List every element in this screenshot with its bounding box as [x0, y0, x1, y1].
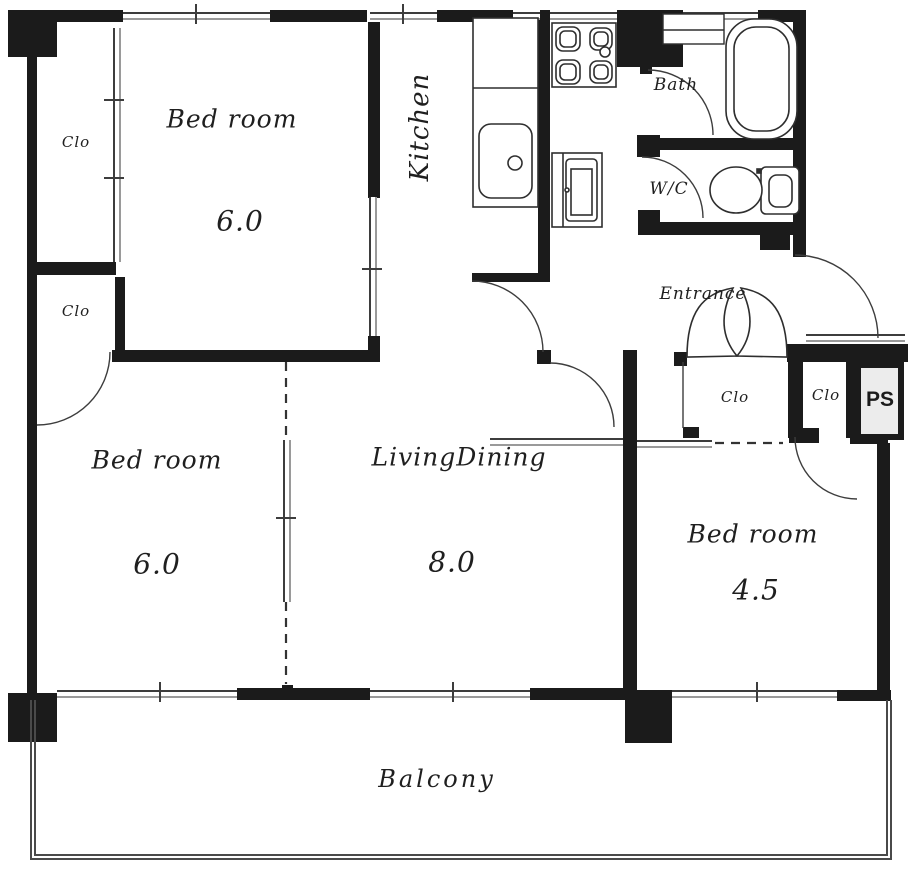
- door-arc-kitchen: [472, 281, 543, 352]
- balcony-label: Balcony: [378, 765, 496, 793]
- bedroom-right-label: Bed room: [688, 520, 819, 549]
- door-arc-entrance: [795, 255, 878, 338]
- bedroom-left-label: Bed room: [92, 446, 223, 475]
- stove-icon: [552, 23, 616, 87]
- pipe-shaft-label: PS: [866, 388, 894, 412]
- living-dining-size: 8.0: [428, 546, 476, 579]
- kitchen-label: Kitchen: [405, 73, 435, 182]
- fixtures-layer: [0, 0, 910, 878]
- entrance-label: Entrance: [660, 284, 747, 304]
- kitchen-sink-icon: [473, 18, 538, 207]
- washing-machine-icon: [552, 153, 602, 227]
- bedroom-top-label: Bed room: [167, 105, 298, 134]
- toilet-icon: [710, 167, 799, 214]
- door-arc-living: [550, 363, 614, 427]
- closet3-label: Clo: [721, 388, 749, 406]
- bath-vanity-icon: [663, 14, 724, 44]
- closet1-label: Clo: [62, 133, 90, 151]
- wc-label: W/C: [649, 179, 688, 199]
- living-dining-label: LivingDining: [371, 443, 546, 472]
- bedroom-left-size: 6.0: [133, 548, 181, 581]
- floor-plan: Bed room 6.0 Clo Clo Kitchen Bath W/C En…: [0, 0, 910, 878]
- door-arc-closet4: [795, 437, 857, 499]
- bath-label: Bath: [654, 75, 698, 95]
- bedroom-right-size: 4.5: [732, 574, 780, 607]
- door-arc-bedroom-left: [37, 352, 110, 425]
- bathtub-icon: [726, 19, 797, 139]
- bedroom-top-size: 6.0: [216, 205, 264, 238]
- closet4-label: Clo: [812, 386, 840, 404]
- closet2-label: Clo: [62, 302, 90, 320]
